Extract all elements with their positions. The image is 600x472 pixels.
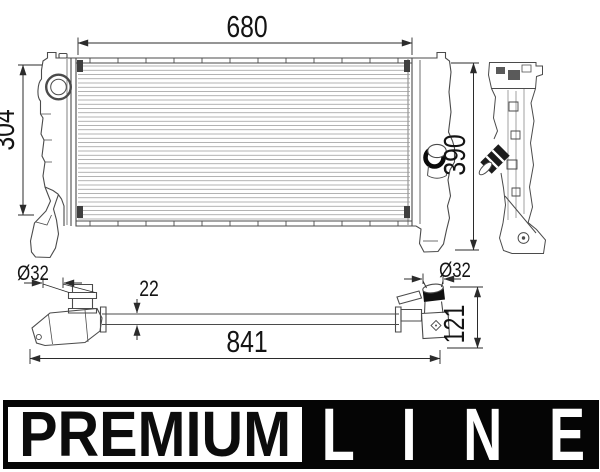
- core-fin-lines: [78, 66, 410, 219]
- dim-label-inlet-diameter: Ø32: [17, 262, 49, 285]
- line-label: LINE: [313, 400, 599, 469]
- side-port: [477, 144, 509, 176]
- dim-label-overall-length: 841: [226, 324, 267, 358]
- left-mounting-foot: [31, 187, 59, 258]
- line-zone: LINE: [313, 400, 599, 469]
- dim-label-outlet-diameter: Ø32: [439, 259, 471, 282]
- left-tank: [31, 53, 77, 258]
- radiator-front-view: [31, 53, 455, 258]
- radiator-side-view: [477, 63, 545, 254]
- header-tick-marks: [90, 59, 398, 226]
- bottom-bar: [102, 314, 399, 325]
- premium-line-banner: PREMIUM LINE: [3, 400, 599, 469]
- dim-label-left-height: 304: [0, 109, 21, 150]
- dim-label-right-height: 390: [437, 134, 471, 175]
- dim-label-end-depth: 121: [437, 305, 470, 344]
- premium-label: PREMIUM: [19, 407, 291, 462]
- dim-label-core-width: 680: [226, 9, 267, 43]
- dimension-lines: [18, 38, 483, 365]
- left-connector: [32, 285, 102, 346]
- premium-box: PREMIUM: [8, 407, 302, 462]
- core-corner-blocks: [77, 60, 410, 218]
- technical-drawing-page: 680 304 390 841 121 Ø32 Ø32 22 PREMIUM L…: [0, 0, 600, 472]
- radiator-drawing: 680 304 390 841 121 Ø32 Ø32 22: [0, 0, 600, 400]
- dim-label-bar-thickness: 22: [139, 277, 159, 301]
